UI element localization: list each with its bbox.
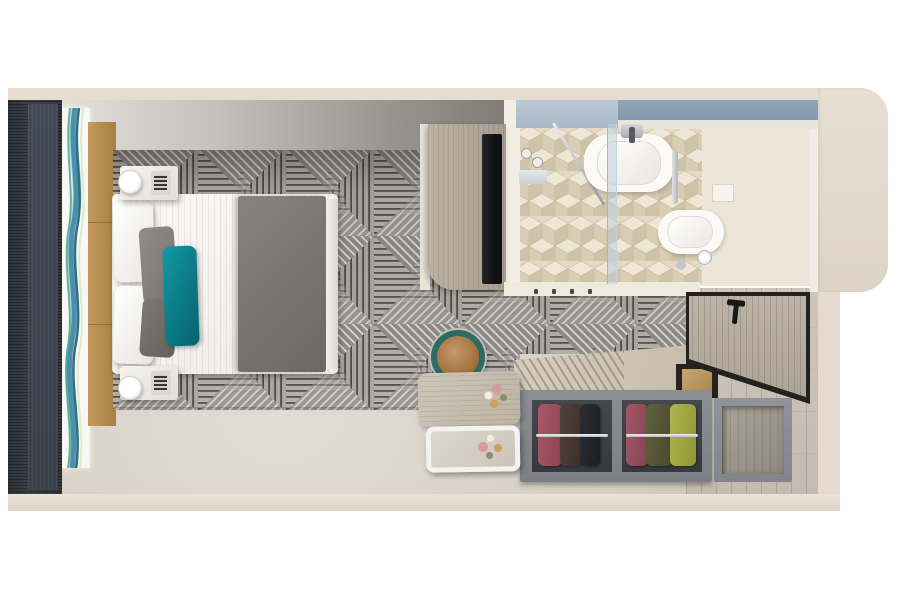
vent-grille — [700, 118, 754, 138]
table-lamp — [118, 170, 142, 194]
toilet-seat — [667, 216, 713, 248]
outer-wall-right — [818, 292, 840, 502]
bath-accessory — [676, 260, 686, 270]
drinking-glass — [532, 157, 543, 168]
towel-hook — [552, 289, 556, 294]
wall-slat-panel — [28, 104, 58, 490]
tv-screen — [482, 134, 502, 284]
floorplan-stage — [0, 0, 903, 602]
flower-vase — [482, 382, 516, 416]
outer-wall-bottom — [8, 494, 840, 511]
drinking-glass — [521, 148, 532, 159]
toilet-paper-holder — [697, 250, 712, 265]
towel-hook — [588, 289, 592, 294]
shower-glass-divider — [607, 124, 617, 284]
open-shelf-cabinet — [714, 398, 792, 482]
flush-plate — [712, 184, 734, 202]
towel-hook — [534, 289, 538, 294]
outer-wall-top — [8, 88, 828, 100]
hull-curved-wall — [818, 88, 888, 292]
door-handle — [725, 299, 748, 327]
table-lamp — [118, 376, 142, 400]
nightstand-amenity — [151, 171, 171, 195]
wardrobe-bay — [622, 400, 702, 472]
faucet — [621, 124, 643, 138]
closet-rail — [536, 434, 608, 437]
towel-bar — [672, 150, 678, 204]
closet-rail — [626, 434, 698, 437]
pillow-teal-accent — [162, 245, 199, 346]
flower-vase — [474, 432, 510, 466]
cabinet-interior — [722, 406, 784, 474]
wardrobe-bay — [532, 400, 612, 472]
amenity-tray — [519, 170, 547, 184]
bed-duvet — [238, 196, 326, 372]
towel-hook — [570, 289, 574, 294]
wave-artwork — [60, 108, 90, 468]
duvet-fold — [326, 199, 338, 369]
balcony-partition-wall — [8, 92, 62, 504]
nightstand-amenity — [151, 371, 171, 395]
